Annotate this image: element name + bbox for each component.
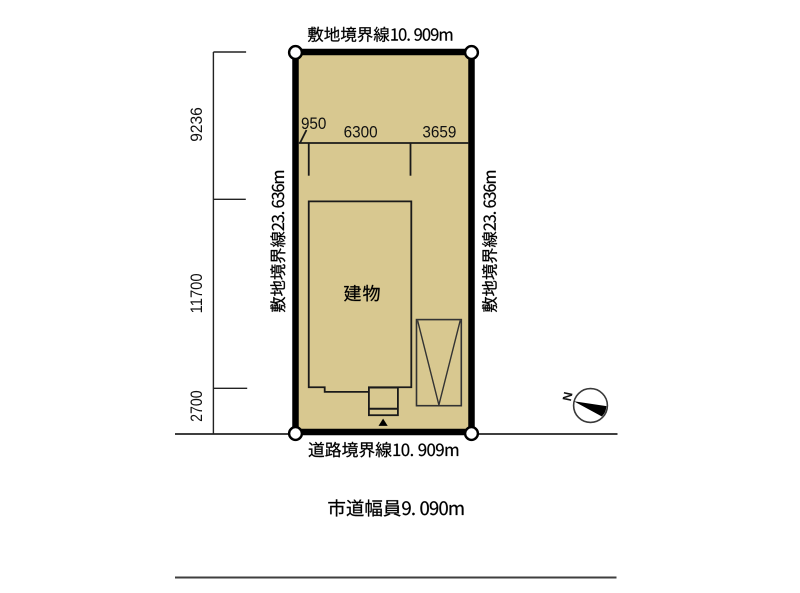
svg-text:2700: 2700 (187, 390, 206, 422)
svg-text:950: 950 (301, 114, 327, 133)
svg-text:9236: 9236 (187, 107, 206, 142)
svg-text:3659: 3659 (422, 123, 456, 142)
svg-text:6300: 6300 (344, 123, 378, 142)
svg-text:11700: 11700 (187, 273, 206, 313)
